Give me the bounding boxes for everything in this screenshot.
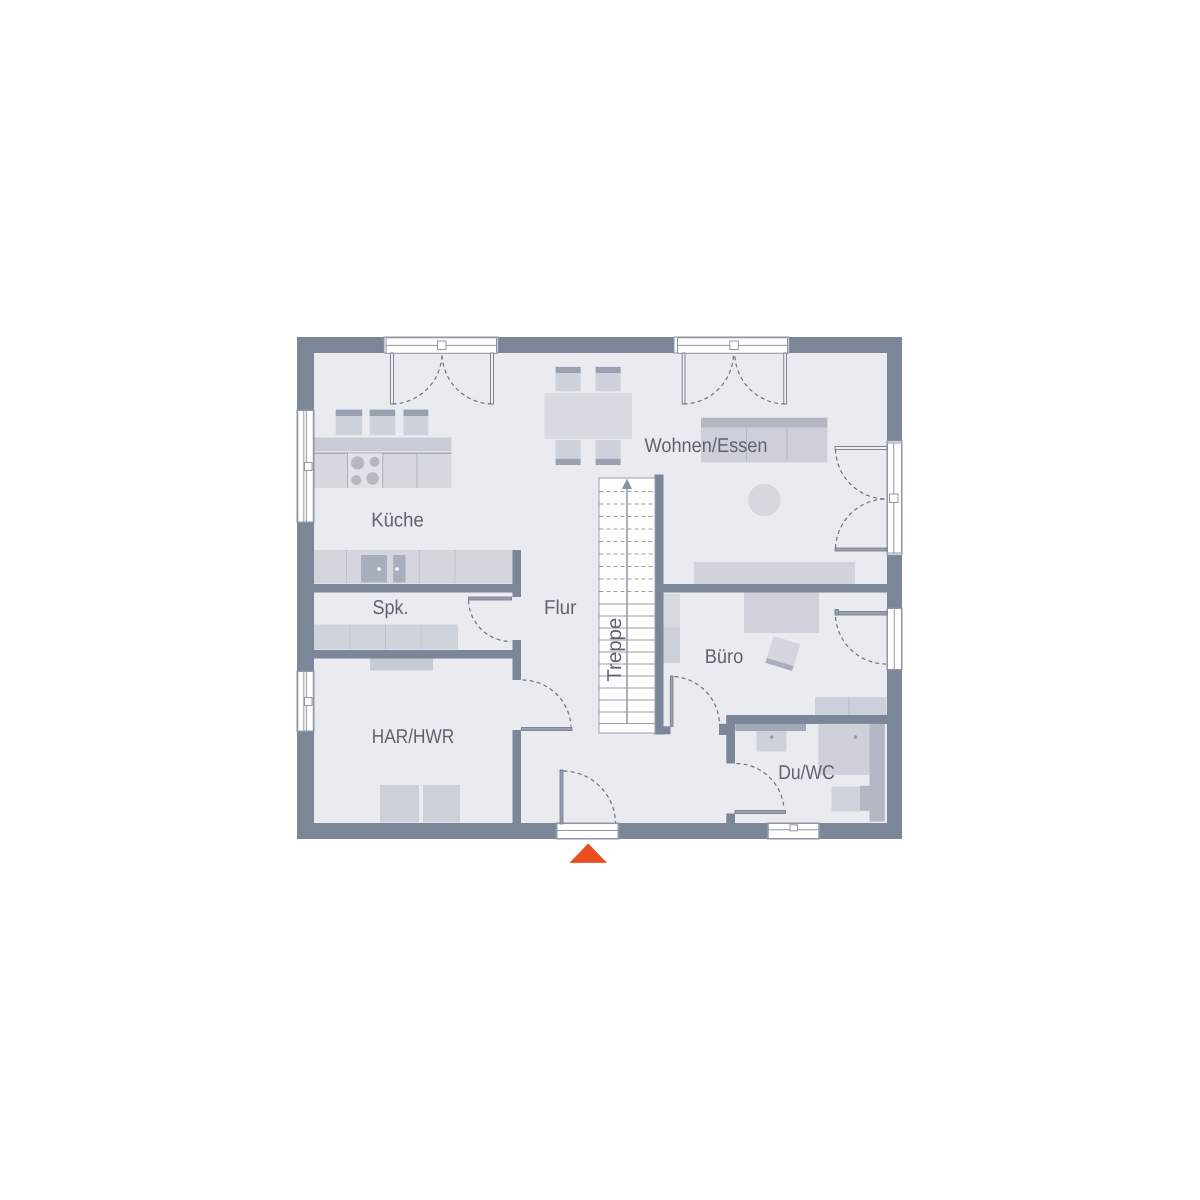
svg-text:Büro: Büro (705, 646, 744, 668)
svg-text:Treppe: Treppe (604, 618, 626, 682)
svg-text:HAR/HWR: HAR/HWR (372, 726, 455, 748)
svg-text:Du/WC: Du/WC (778, 762, 835, 784)
svg-text:Spk.: Spk. (373, 597, 409, 619)
svg-text:Wohnen/Essen: Wohnen/Essen (645, 435, 768, 457)
svg-text:Küche: Küche (371, 510, 424, 532)
svg-text:Flur: Flur (544, 597, 577, 619)
